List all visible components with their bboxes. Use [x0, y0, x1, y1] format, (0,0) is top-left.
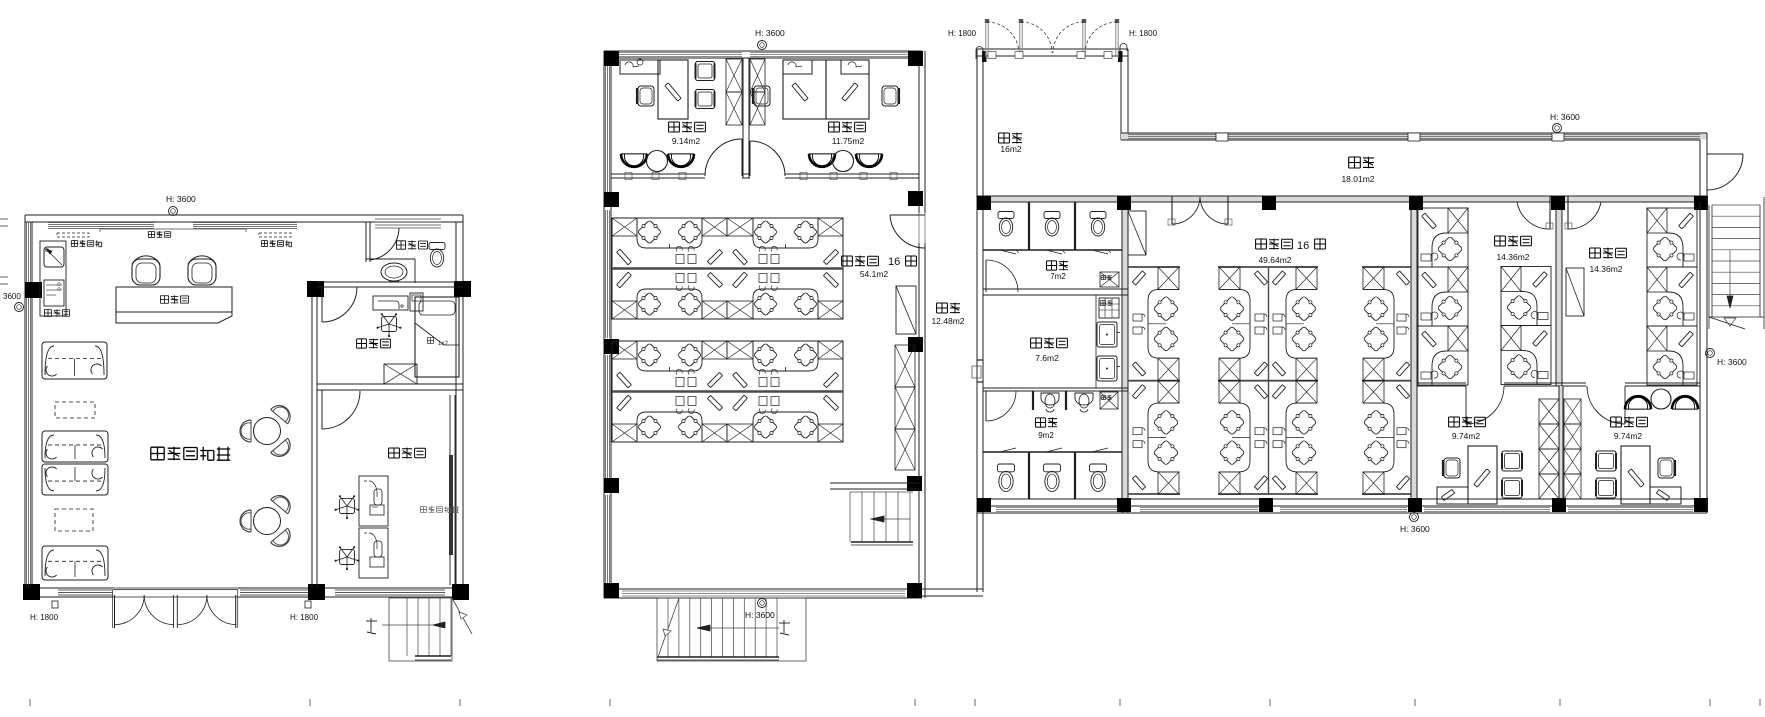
svg-text:H: 3600: H: 3600 — [745, 610, 775, 620]
svg-text:H: 1800: H: 1800 — [948, 29, 977, 38]
svg-text:18.01m2: 18.01m2 — [1341, 174, 1374, 184]
svg-text:7.6m2: 7.6m2 — [1035, 353, 1059, 363]
svg-text:16: 16 — [1297, 240, 1309, 252]
svg-text:16m2: 16m2 — [1000, 144, 1022, 154]
svg-text:H: 1800: H: 1800 — [1129, 29, 1158, 38]
svg-text:H: 1800: H: 1800 — [30, 613, 59, 622]
svg-text:H: 3600: H: 3600 — [1400, 524, 1430, 534]
svg-text:9m2: 9m2 — [1038, 431, 1054, 440]
svg-text:54.1m2: 54.1m2 — [860, 269, 889, 279]
svg-text:49.64m2: 49.64m2 — [1258, 255, 1291, 265]
svg-text:9.74m2: 9.74m2 — [1614, 431, 1643, 441]
svg-text:9.14m2: 9.14m2 — [672, 136, 701, 146]
svg-text:14.36m2: 14.36m2 — [1496, 252, 1529, 262]
svg-text:H: 3600: H: 3600 — [1717, 357, 1747, 367]
svg-text:14.36m2: 14.36m2 — [1589, 264, 1622, 274]
svg-text:H: 1800: H: 1800 — [290, 613, 319, 622]
svg-text:H: 3600: H: 3600 — [1550, 112, 1580, 122]
svg-text:12.48m2: 12.48m2 — [931, 316, 964, 326]
svg-text:H: 3600: H: 3600 — [755, 28, 785, 38]
svg-text:1x2: 1x2 — [438, 340, 449, 347]
svg-text:3600: 3600 — [3, 292, 21, 301]
svg-text:16: 16 — [888, 256, 900, 268]
svg-text:7m2: 7m2 — [1050, 272, 1066, 281]
svg-text:9.74m2: 9.74m2 — [1452, 431, 1481, 441]
svg-text:H: 3600: H: 3600 — [166, 194, 196, 204]
svg-text:11.75m2: 11.75m2 — [832, 136, 865, 146]
